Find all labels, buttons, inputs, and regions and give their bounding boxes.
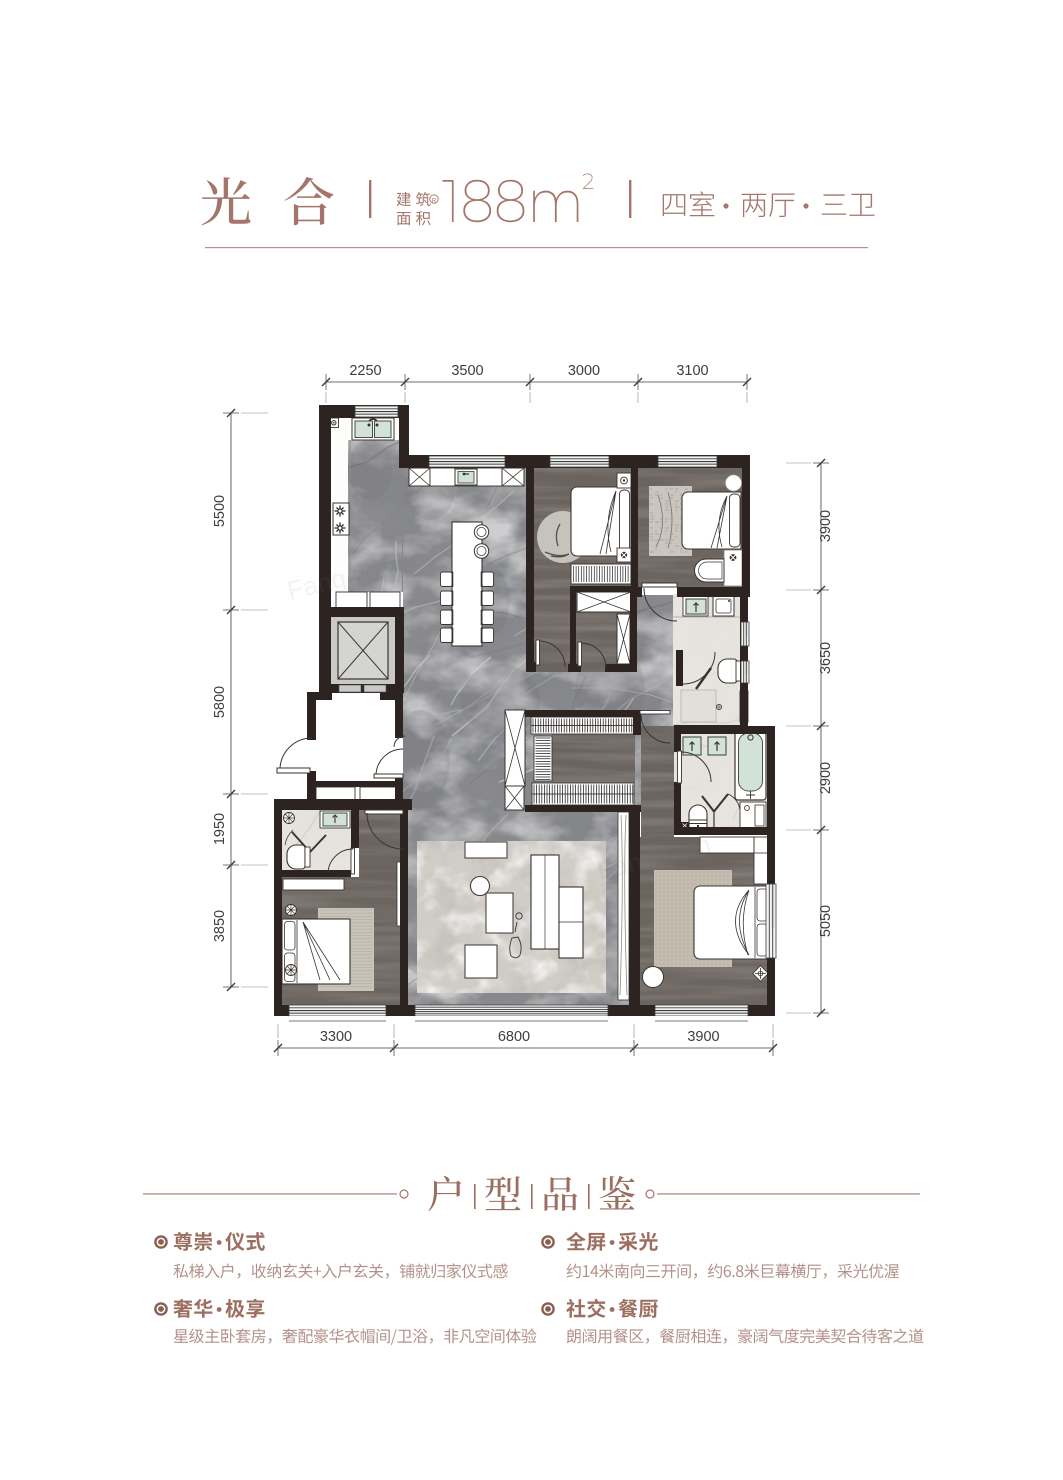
svg-text:3300: 3300 (320, 1029, 352, 1045)
svg-text:R: R (432, 198, 437, 204)
svg-text:5500: 5500 (212, 495, 228, 527)
svg-text:2250: 2250 (349, 363, 381, 379)
svg-text:5050: 5050 (818, 905, 834, 937)
svg-text:3850: 3850 (212, 910, 228, 942)
svg-text:3000: 3000 (568, 363, 600, 379)
svg-text:3500: 3500 (451, 363, 483, 379)
svg-text:3650: 3650 (818, 642, 834, 674)
svg-text:3900: 3900 (687, 1029, 719, 1045)
svg-text:2900: 2900 (818, 762, 834, 794)
svg-text:6800: 6800 (498, 1029, 530, 1045)
svg-text:3100: 3100 (676, 363, 708, 379)
svg-text:3900: 3900 (818, 510, 834, 542)
svg-text:1950: 1950 (212, 813, 228, 845)
svg-text:5800: 5800 (212, 686, 228, 718)
